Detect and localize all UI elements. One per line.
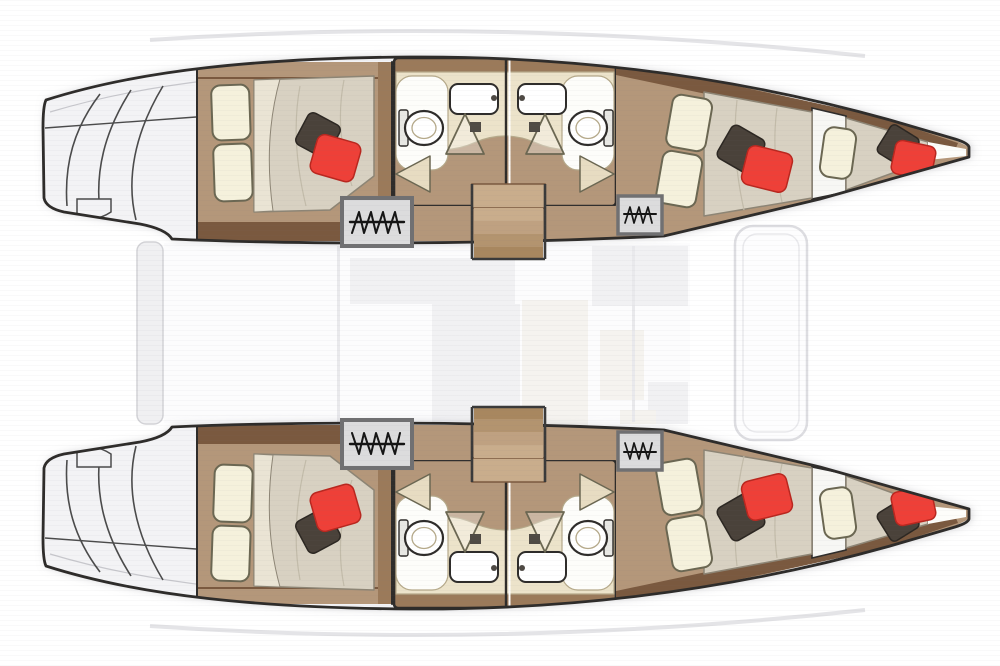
salon-step-ghost: [620, 410, 656, 424]
stair-tread: [474, 221, 543, 234]
toilet-icon: [569, 111, 607, 145]
sink-icon: [518, 84, 566, 114]
stair-tread: [474, 208, 543, 221]
step-hatch: [618, 196, 662, 234]
faucet-icon: [491, 95, 497, 101]
nav-station-ghost: [592, 246, 688, 306]
hull-starboard: [43, 407, 969, 609]
salon-table-ghost: [432, 304, 520, 422]
step-hatch: [342, 198, 412, 246]
sink-icon: [450, 84, 498, 114]
toilet-icon: [405, 111, 443, 145]
companionway-stairs: [472, 184, 545, 259]
shower-drain: [529, 122, 540, 132]
pillow: [211, 84, 251, 140]
faucet-icon: [519, 95, 525, 101]
pillow: [213, 143, 253, 201]
red-pillow: [890, 139, 937, 181]
coachroof-arc-top: [150, 31, 865, 56]
coachroof-arc-bottom: [150, 610, 865, 635]
pillow: [665, 93, 714, 152]
salon-sofa-ghost: [350, 258, 515, 304]
shower-drain: [470, 122, 481, 132]
pillow: [819, 126, 858, 180]
stair-tread: [474, 247, 543, 259]
stair-tread: [474, 234, 543, 247]
hull-port: [43, 57, 969, 259]
salon-right-wall-ghost: [632, 246, 635, 422]
forward-cockpit: [735, 226, 807, 440]
aft-platform: [137, 242, 163, 424]
galley-counter-ghost: [600, 330, 644, 400]
stair-landing: [472, 184, 545, 208]
catamaran-floor-plan: [0, 0, 1000, 666]
floor-plan-canvas: [0, 0, 1000, 666]
forward-cabin: [616, 58, 969, 240]
salon-left-wall-ghost: [337, 246, 340, 422]
